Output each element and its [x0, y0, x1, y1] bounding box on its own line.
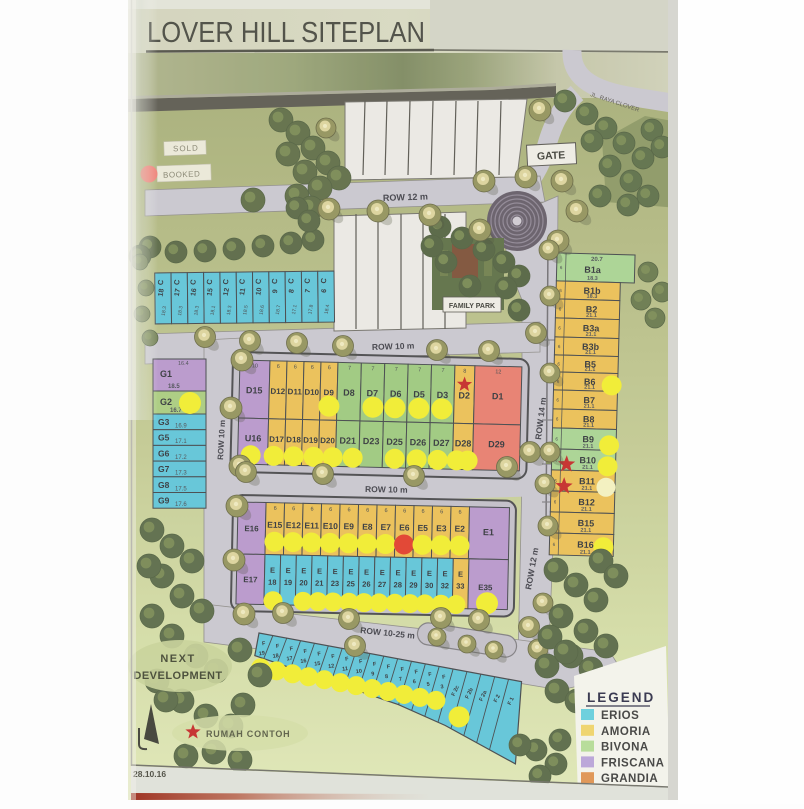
- svg-text:28.10.16: 28.10.16: [133, 769, 166, 779]
